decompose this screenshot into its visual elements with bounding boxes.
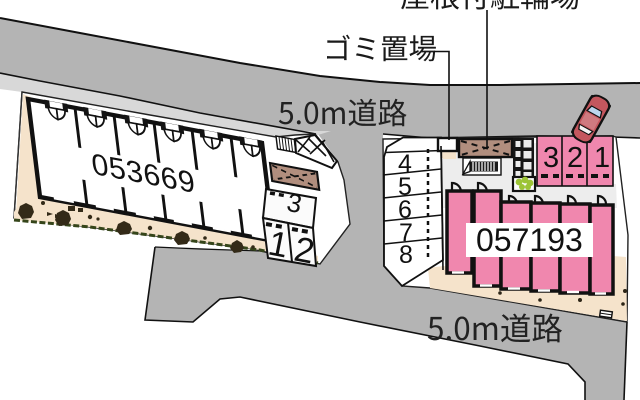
- svg-text:1: 1: [594, 142, 610, 174]
- svg-text:3: 3: [543, 142, 559, 174]
- svg-text:8: 8: [399, 241, 413, 269]
- svg-text:057193: 057193: [476, 222, 583, 258]
- svg-text:2: 2: [567, 142, 583, 174]
